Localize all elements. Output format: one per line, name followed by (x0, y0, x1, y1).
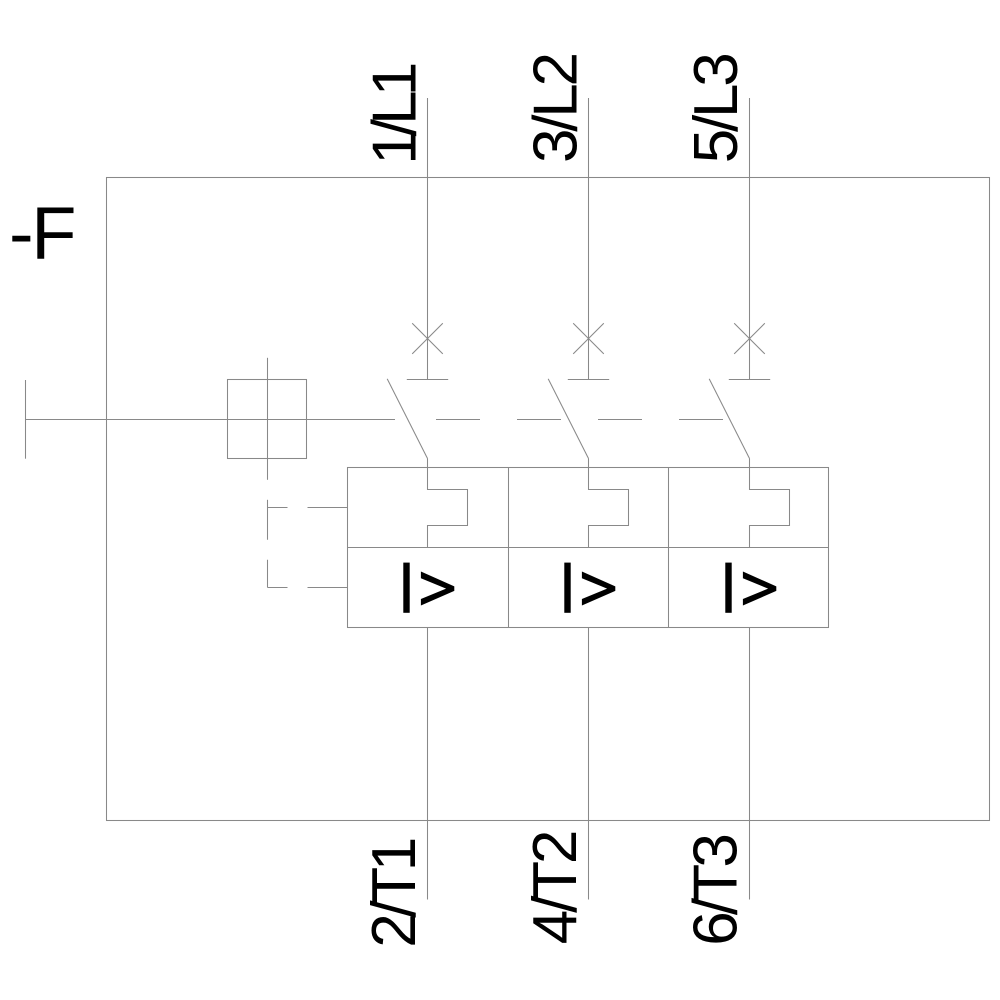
svg-text:1/L1: 1/L1 (361, 62, 430, 165)
svg-text:-F: -F (9, 192, 77, 275)
svg-text:4/T2: 4/T2 (521, 830, 590, 945)
svg-text:2/T1: 2/T1 (360, 837, 429, 948)
svg-text:3/L2: 3/L2 (521, 52, 590, 163)
svg-text:6/T3: 6/T3 (682, 833, 751, 946)
svg-text:5/L3: 5/L3 (682, 52, 751, 163)
